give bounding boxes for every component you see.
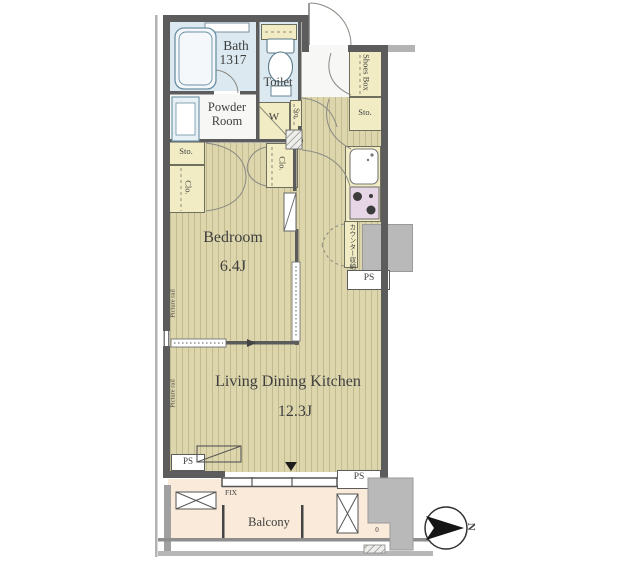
bath-size: 1317 bbox=[203, 53, 263, 67]
vanity-sink-icon bbox=[172, 97, 199, 141]
north-label: N bbox=[464, 515, 476, 539]
picture-rail-label-1: Picture rail bbox=[171, 273, 178, 333]
bedroom-closet-right-label: Clo. bbox=[278, 143, 287, 183]
ps-label-bottom-left: PS bbox=[168, 457, 208, 466]
bedroom-door-leaf bbox=[284, 193, 296, 231]
drain-label: 0 bbox=[369, 527, 385, 534]
bedroom-storage-label: Sto. bbox=[166, 147, 206, 156]
balcony-access-marker bbox=[285, 462, 297, 471]
powder-room-name-line2: Room bbox=[196, 115, 258, 128]
north-arrow-icon bbox=[425, 507, 467, 549]
floor-plan: Bath 1317 Toilet Powder Room W Sto. Shoe… bbox=[0, 0, 640, 569]
entrance-storage-label: Sto. bbox=[343, 108, 387, 117]
balcony-name: Balcony bbox=[209, 516, 329, 529]
shoes-box-label: Shoes Box bbox=[362, 49, 371, 95]
ldk-area: 12.3J bbox=[175, 404, 415, 421]
powder-room-name-line1: Powder bbox=[196, 101, 258, 114]
hall-storage-label: Sto. bbox=[292, 102, 299, 126]
kitchen-sink-icon bbox=[350, 149, 378, 184]
bedroom-name: Bedroom bbox=[173, 230, 293, 247]
balcony-drain-hatch bbox=[364, 545, 385, 553]
duct-hatch bbox=[286, 130, 302, 149]
ps-label-bottom-right: PS bbox=[339, 473, 379, 483]
washing-machine-label: W bbox=[262, 112, 286, 124]
bedroom-area: 6.4J bbox=[173, 259, 293, 276]
fix-label: FIX bbox=[211, 489, 251, 497]
plan-linework bbox=[0, 0, 640, 569]
ps-label-kitchen: PS bbox=[349, 274, 389, 284]
ldk-name: Living Dining Kitchen bbox=[168, 374, 408, 391]
toilet-name: Toilet bbox=[256, 76, 300, 89]
bedroom-closet-left-label: Clo. bbox=[184, 167, 193, 207]
counter-storage-label: カウンター収納 bbox=[347, 224, 354, 266]
stove-icon bbox=[350, 187, 379, 219]
